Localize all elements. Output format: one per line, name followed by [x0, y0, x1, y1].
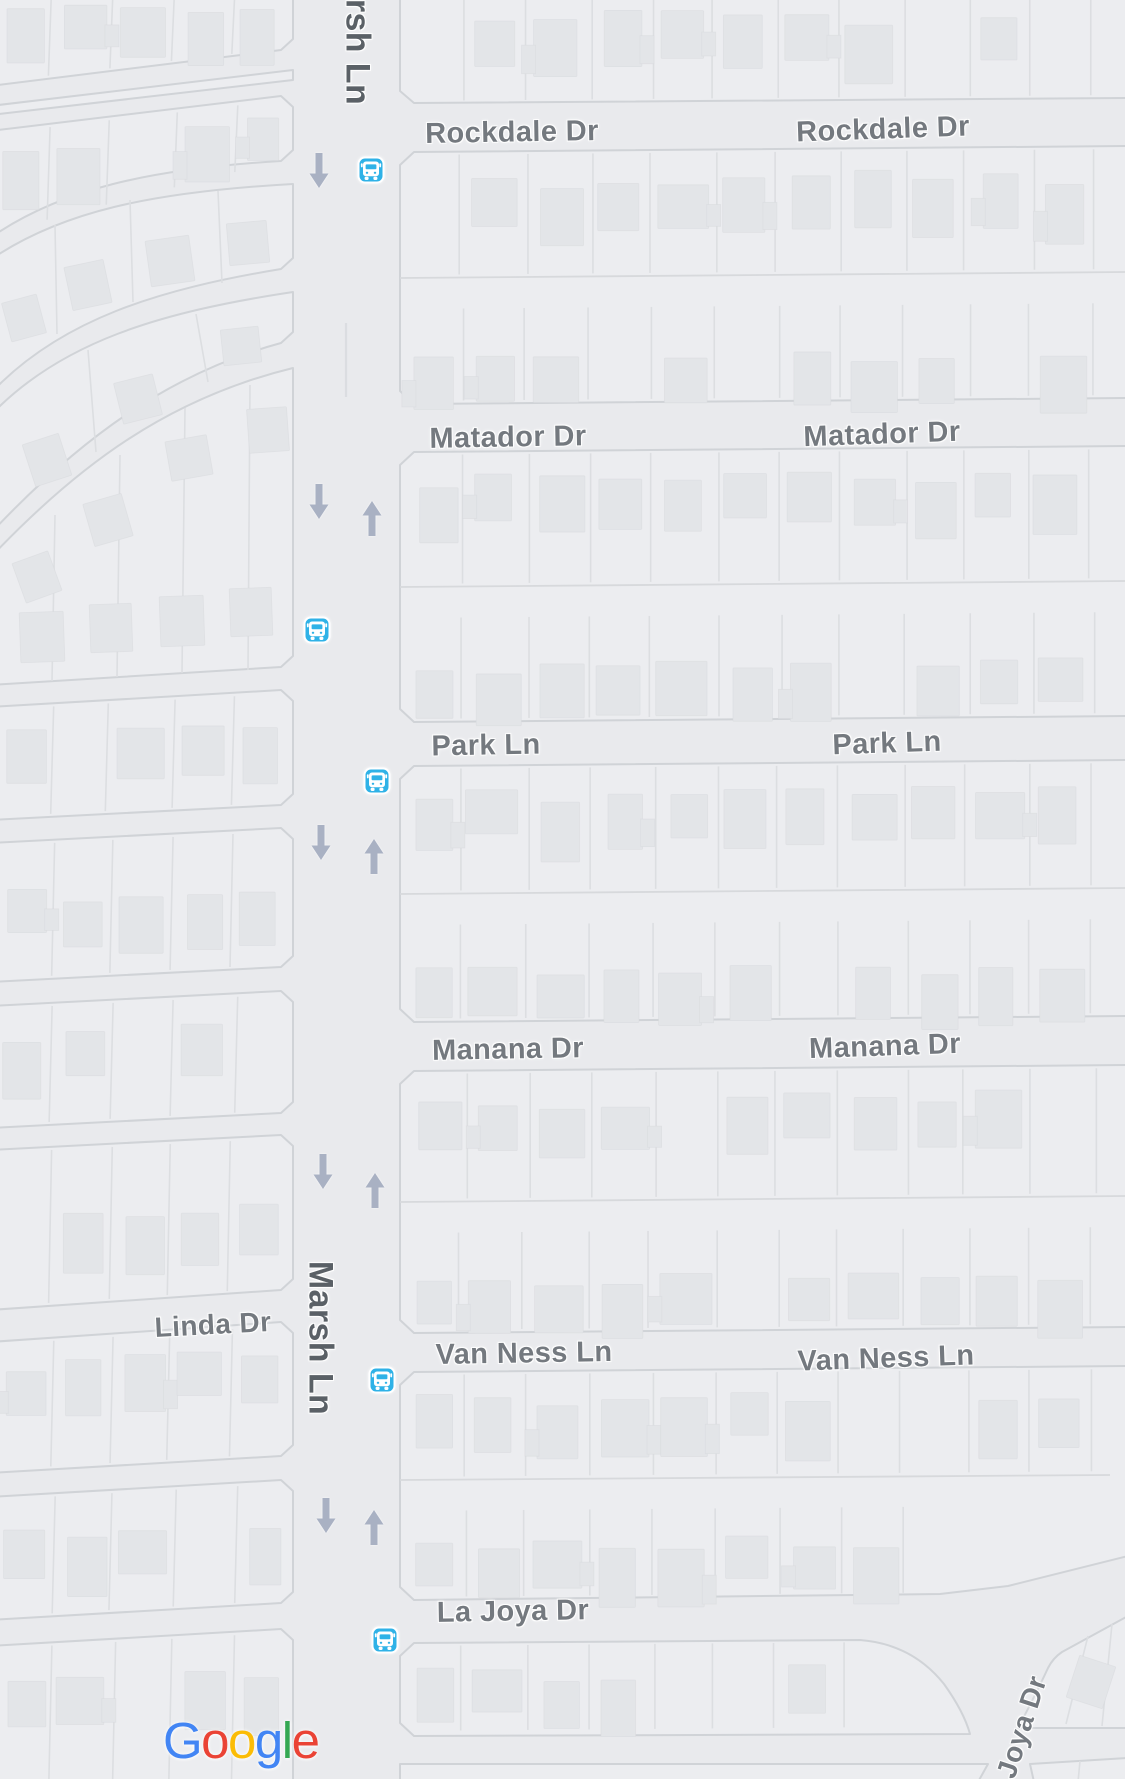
bus-stop-rockdale[interactable] [357, 156, 385, 184]
bus-stop-van-ness[interactable] [368, 1366, 396, 1394]
one-way-up-arrow-icon [363, 1509, 385, 1546]
google-logo[interactable]: Google [163, 1712, 319, 1770]
one-way-down-arrow-icon [312, 1153, 334, 1190]
bus-icon [363, 767, 391, 795]
one-way-down-arrow-icon [308, 483, 330, 520]
one-way-down-arrow-icon [308, 152, 330, 189]
bus-stop-park[interactable] [363, 767, 391, 795]
bus-icon [371, 1626, 399, 1654]
map-canvas[interactable]: Rockdale DrRockdale DrMatador DrMatador … [0, 0, 1125, 1779]
one-way-down-arrow-icon [310, 824, 332, 861]
one-way-up-arrow-icon [364, 1172, 386, 1209]
google-logo-letter: o [228, 1712, 255, 1769]
google-logo-letter: g [255, 1712, 282, 1769]
bus-icon [303, 616, 331, 644]
map-markers-layer [0, 0, 1125, 1779]
bus-icon [357, 156, 385, 184]
google-logo-letter: e [292, 1712, 319, 1769]
bus-stop-la-joya[interactable] [371, 1626, 399, 1654]
one-way-up-arrow-icon [361, 500, 383, 537]
bus-stop-marsh-mid[interactable] [303, 616, 331, 644]
one-way-up-arrow-icon [363, 838, 385, 875]
bus-icon [368, 1366, 396, 1394]
google-logo-letter: l [282, 1712, 292, 1769]
google-logo-letter: o [201, 1712, 228, 1769]
one-way-down-arrow-icon [315, 1497, 337, 1534]
google-logo-letter: G [163, 1712, 201, 1769]
